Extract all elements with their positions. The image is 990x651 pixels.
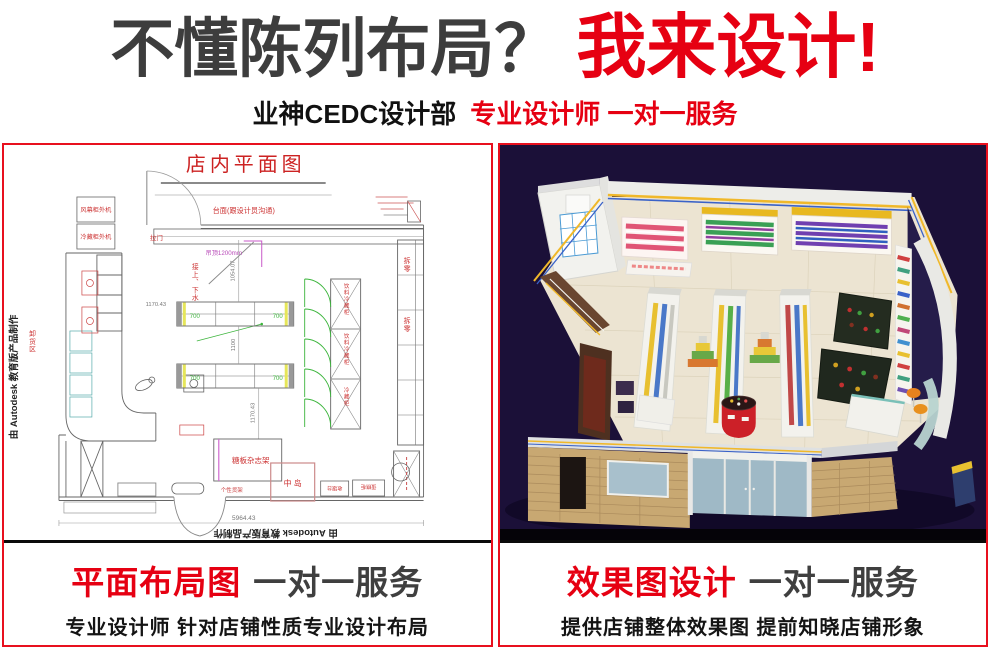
dim-1100: 1100 <box>231 339 237 351</box>
outdoor-units <box>77 197 115 249</box>
right-caption: 效果图设计一对一服务 提供店铺整体效果图 提前知晓店铺形象 <box>500 540 987 645</box>
cashier-area: 收银台 蛋糕柜 <box>321 463 410 496</box>
fan-unit-label: 风幕柜外机 <box>80 206 112 214</box>
orange-chair <box>906 388 920 398</box>
right-caption-highlight: 效果图设计 <box>567 564 737 601</box>
gondola-2: 700 700 <box>177 364 294 388</box>
subtitle-service: 专业设计师 一对一服务 <box>470 99 737 129</box>
magazine-label: 糖板杂志架 <box>232 455 270 465</box>
counter-note-label: 台面(跟设计员沟通) <box>213 206 275 215</box>
annotation-cluster <box>376 197 421 222</box>
counter-appliances <box>82 271 98 333</box>
facade-window <box>607 461 667 497</box>
dim-700: 700 <box>190 376 201 382</box>
green-leader <box>197 323 263 341</box>
cooler-label: 饮料冷藏柜 <box>343 282 350 316</box>
store-render-svg <box>500 145 987 540</box>
counter-cabinets <box>70 331 92 417</box>
cooler-column: 饮料冷藏柜 饮料冷藏柜 冷藏柜 <box>331 279 361 429</box>
content-panels: 店内平面图 <box>0 143 990 647</box>
cooler-label-2: 冷藏柜 <box>343 386 350 407</box>
render-bottom-strip <box>500 529 987 540</box>
cooler-door-swings <box>305 279 331 427</box>
orange-chair <box>913 404 927 414</box>
island-label: 中 岛 <box>284 478 302 488</box>
top-entrance-door <box>147 171 201 225</box>
dim-1170: 1170.43 <box>251 403 257 423</box>
floor-plan-svg: 店内平面图 <box>4 145 491 540</box>
right-caption-rest: 一对一服务 <box>749 564 919 601</box>
dim-5964: 5964.43 <box>232 515 256 522</box>
left-caption: 平面布局图一对一服务 专业设计师 针对店铺性质专业设计布局 <box>4 540 491 645</box>
ceiling-label: 吊顶1200mm <box>206 250 242 257</box>
right-x-fixture <box>394 451 420 497</box>
left-caption-sub: 专业设计师 针对店铺性质专业设计布局 <box>4 611 491 640</box>
water-label: 接上、下水 <box>190 262 198 302</box>
watermark-left: 由 Autodesk 教育版产品制作 <box>8 314 20 439</box>
unload-label: 卸货区 <box>27 329 35 353</box>
dim-700: 700 <box>190 314 201 320</box>
plan-title: 店内平面图 <box>186 153 306 176</box>
subtitle: 业神CEDC设计部专业设计师 一对一服务 <box>0 94 990 131</box>
blue-sign <box>951 461 975 507</box>
poster-header: 不懂陈列布局？我来设计! 业神CEDC设计部专业设计师 一对一服务 <box>0 0 990 143</box>
gondola-1: 700 700 <box>177 302 294 326</box>
main-title-black: 不懂陈列布局？ <box>110 13 558 85</box>
floor-plan-panel: 店内平面图 <box>2 143 493 647</box>
dim-1054: 1054.07 <box>231 261 237 282</box>
magazine-rack: 糖板杂志架 <box>214 439 282 481</box>
right-shelf-strip: 拆零 拆零 <box>398 240 424 445</box>
center-island: 中 岛 <box>271 463 315 501</box>
dark-doorway <box>559 457 585 509</box>
watermark-bottom: 由 Autodesk 教育版产品制作 <box>213 527 338 539</box>
cake-label: 蛋糕柜 <box>361 483 377 491</box>
right-caption-title: 效果图设计一对一服务 <box>500 556 987 604</box>
dim-700: 700 <box>273 376 284 382</box>
right-caption-sub: 提供店铺整体效果图 提前知晓店铺形象 <box>500 611 987 640</box>
floor-plan-art: 店内平面图 <box>4 145 491 540</box>
subtitle-brand: 业神CEDC设计部 <box>253 99 457 129</box>
main-title: 不懂陈列布局？我来设计! <box>0 2 990 93</box>
left-x-fixture <box>64 441 156 513</box>
sliding-door-label: 拉门 <box>150 233 163 242</box>
dim-1170-b: 1170.43 <box>146 302 166 308</box>
cooler-label: 饮料冷藏柜 <box>343 332 350 366</box>
shelf-note-label: 个性货架 <box>221 486 243 494</box>
main-title-red: 我来设计! <box>576 8 879 86</box>
left-caption-highlight: 平面布局图 <box>71 564 241 601</box>
retail-label: 拆零 <box>403 256 410 273</box>
equipment-icons <box>134 375 204 494</box>
dim-700: 700 <box>273 314 284 320</box>
render-panel: 效果图设计一对一服务 提供店铺整体效果图 提前知晓店铺形象 <box>498 143 989 647</box>
left-caption-title: 平面布局图一对一服务 <box>4 556 491 604</box>
cashier-label: 收银台 <box>327 484 343 492</box>
render-art <box>500 145 987 540</box>
fridge-unit-label: 冷藏柜外机 <box>80 233 112 241</box>
retail-label: 拆零 <box>403 316 410 333</box>
red-display-stand <box>721 396 755 438</box>
left-caption-rest: 一对一服务 <box>253 564 423 601</box>
gondola-island <box>779 289 813 437</box>
